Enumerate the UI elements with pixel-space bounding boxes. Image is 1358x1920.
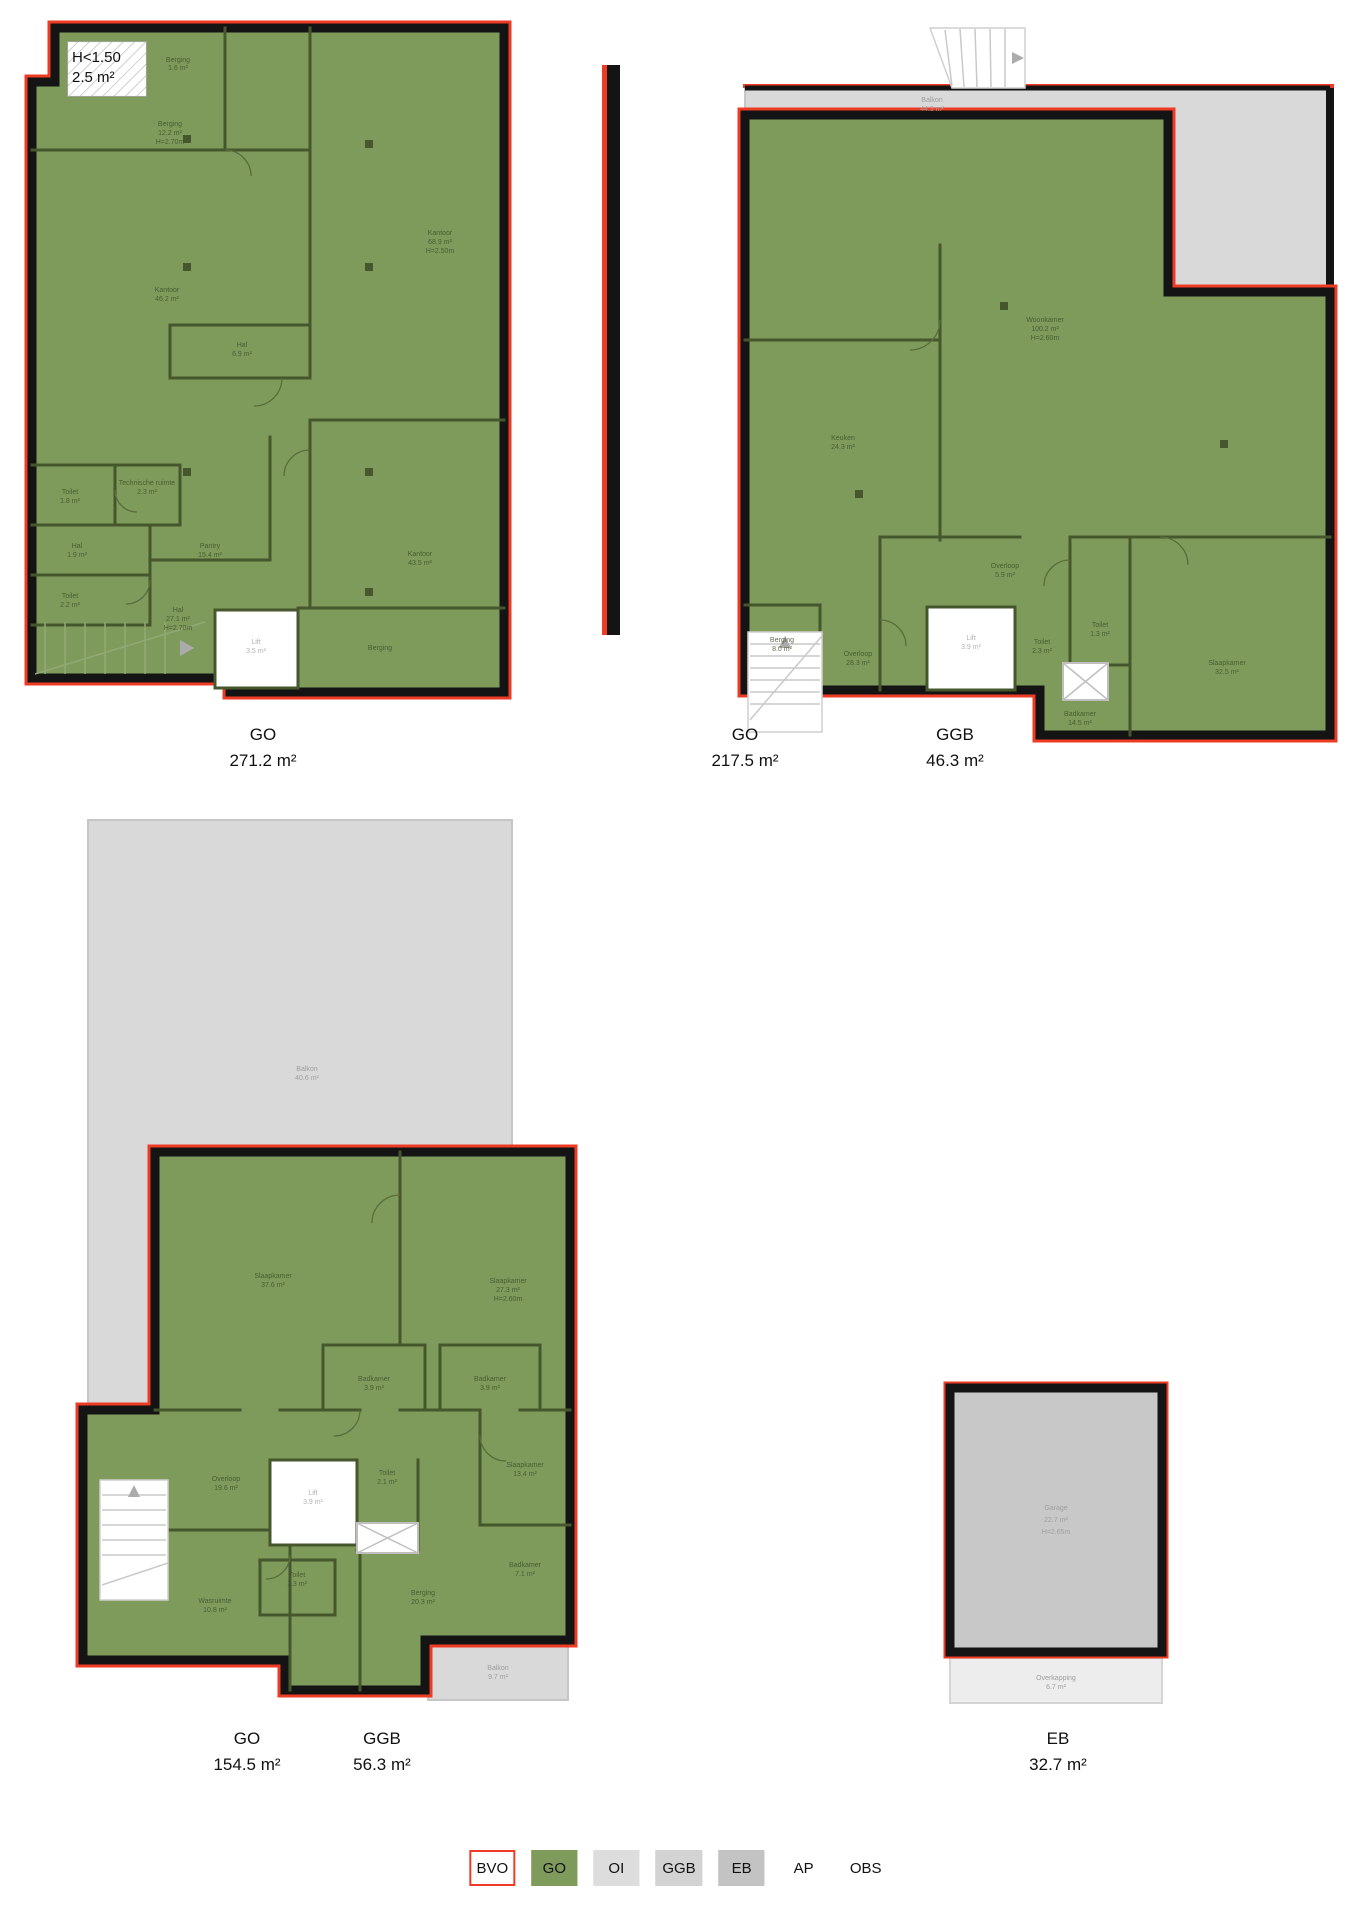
legend-item-bvo: BVO [469,1850,515,1886]
room-area: 24.3 m² [831,444,855,451]
legend: BVO GO OI GGB EB AP OBS [469,1850,888,1886]
room-area: 1.3 m² [1090,631,1111,638]
room-area: 27.1 m² [166,616,190,623]
room-area: 13.4 m² [513,1471,537,1478]
room-area: 19.6 m² [214,1485,238,1492]
room-height: H=2.60m [494,1296,523,1303]
room-area: 68.9 m² [428,239,452,246]
room-height: H=2.70m [156,139,185,146]
room-area: 6.9 m² [232,351,253,358]
room-label: Hal [237,342,248,349]
room-label: Slaapkamer [489,1278,527,1285]
room-label: Pantry [200,543,221,550]
room-area: 46.2 m² [155,296,179,303]
staircase [100,1480,168,1600]
room-label: Badkamer [358,1376,391,1383]
caption-plan1-go: GO 271.2 m² [183,722,343,774]
low-height-area: H<1.50 2.5 m² [68,42,146,96]
room-label: Kantoor [408,551,433,558]
room-label: Toilet [62,489,78,496]
room-area: 100.2 m² [1031,326,1059,333]
room-area: 3.5 m² [246,648,267,655]
room-area: 1.9 m² [67,552,88,559]
room-height: H=2.70m [164,625,193,632]
room-area: 32.5 m² [1215,669,1239,676]
caption-plan2-ggb: GGB 46.3 m² [875,722,1035,774]
room-label: Technische ruimte [119,480,176,487]
room-area: 1.3 m² [287,1581,308,1588]
caption-plan3-ggb: GGB 56.3 m² [302,1726,462,1778]
room-area: 14.5 m² [1068,720,1092,727]
caption-area: 46.3 m² [875,748,1035,774]
caption-garage-eb: EB 32.7 m² [978,1726,1138,1778]
room-label: Lift [308,1490,317,1497]
legend-item-oi: OI [593,1850,639,1886]
caption-code: EB [978,1726,1138,1752]
caption-plan2-go: GO 217.5 m² [665,722,825,774]
room-label: Lift [251,639,260,646]
room-label: Garage [1044,1505,1067,1512]
room-area: 6.7 m² [1046,1684,1067,1691]
room-label: Badkamer [509,1562,542,1569]
room-area: 2.3 m² [1032,648,1053,655]
room-area: 12.2 m² [158,130,182,137]
room-area: 2.2 m² [60,602,81,609]
room-area: 3.9 m² [961,644,982,651]
room-area: 3.9 m² [364,1385,385,1392]
room-area: 1.6 m² [168,65,189,72]
room-area: 44.3 m² [920,106,944,113]
room-label: Overloop [991,563,1020,570]
room-label: Overloop [844,651,873,658]
room-area: 27.3 m² [496,1287,520,1294]
room-area: 1.8 m² [60,498,81,505]
legend-item-eb: EB [719,1850,765,1886]
ventilation-shaft [1063,663,1108,700]
room-label: Badkamer [1064,711,1097,718]
room-height: H=2.65m [1042,1529,1071,1536]
room-label: Kantoor [428,230,453,237]
room-label: Berging [166,57,190,64]
room-area: 10.8 m² [203,1607,227,1614]
floorplan-ground-floor: H<1.50 2.5 m² Berging 1.6 m² Berging 12.… [20,20,512,700]
caption-code: GGB [875,722,1035,748]
room-area: 40.6 m² [295,1075,319,1082]
balcony-small-area [428,1645,568,1700]
room-label: Kantoor [155,287,180,294]
go-area [83,1152,570,1690]
room-label: Berging [770,637,794,644]
room-label: Hal [72,543,83,550]
room-label: Toilet [289,1572,305,1579]
room-area: 28.3 m² [846,660,870,667]
room-area: 43.5 m² [408,560,432,567]
room-label: Slaapkamer [254,1273,292,1280]
room-label: Berging [158,121,182,128]
legend-item-obs: OBS [843,1850,889,1886]
room-label: Toilet [379,1470,395,1477]
caption-code: GGB [302,1726,462,1752]
room-area: 3.9 m² [480,1385,501,1392]
room-label: Balkon [487,1665,509,1672]
room-area: 20.3 m² [411,1599,435,1606]
caption-area: 271.2 m² [183,748,343,774]
floorplan-garage: Garage 22.7 m² H=2.65m Overkapping 6.7 m… [940,1380,1175,1710]
caption-code: GO [183,722,343,748]
room-label: Overkapping [1036,1675,1076,1682]
hatch-label-line1: H<1.50 [72,49,121,66]
go-area [32,28,504,692]
legend-item-ap: AP [781,1850,827,1886]
room-area: 7.1 m² [515,1571,536,1578]
room-label: Keuken [831,435,855,442]
room-area: 2.3 m² [137,489,158,496]
room-label: Wasruimte [198,1598,231,1605]
room-label: Overloop [212,1476,241,1483]
room-label: Toilet [62,593,78,600]
caption-code: GO [665,722,825,748]
room-label: Toilet [1034,639,1050,646]
measurement-drawing-page: H<1.50 2.5 m² Berging 1.6 m² Berging 12.… [0,0,1358,1920]
room-area: 9.7 m² [488,1674,509,1681]
floorplan-second-floor: Balkon 40.6 m² Slaapkamer 37.6 m² Slaapk… [60,815,580,1705]
ventilation-shaft [357,1523,418,1553]
room-area: 2.1 m² [377,1479,398,1486]
room-label: Slaapkamer [1208,660,1246,667]
room-area: 5.9 m² [995,572,1016,579]
room-label: Balkon [921,97,943,104]
room-label: Badkamer [474,1376,507,1383]
room-label: Slaapkamer [506,1462,544,1469]
caption-area: 32.7 m² [978,1752,1138,1778]
room-area: 3.9 m² [303,1499,324,1506]
caption-area: 217.5 m² [665,748,825,774]
room-label: Toilet [1092,622,1108,629]
room-label: Berging [411,1590,435,1597]
hatch-label-line2: 2.5 m² [72,69,115,86]
exterior-staircase [930,28,1025,88]
floorplan-first-floor: Balkon 44.3 m² Woonkamer 100.2 m² H=2.60… [600,20,1345,755]
legend-item-ggb: GGB [655,1850,702,1886]
room-label: Woonkamer [1026,317,1064,324]
stairwell-wall [602,65,620,635]
legend-item-go: GO [531,1850,577,1886]
room-area: 15.4 m² [198,552,222,559]
room-label: Balkon [296,1066,318,1073]
room-label: Hal [173,607,184,614]
room-height: H=2.50m [426,248,455,255]
room-label: Lift [966,635,975,642]
room-area: 37.6 m² [261,1282,285,1289]
room-area: 22.7 m² [1044,1517,1068,1524]
caption-area: 56.3 m² [302,1752,462,1778]
room-height: H=2.60m [1031,335,1060,342]
room-label: Berging [368,645,392,652]
room-area: 8.0 m² [772,646,793,653]
